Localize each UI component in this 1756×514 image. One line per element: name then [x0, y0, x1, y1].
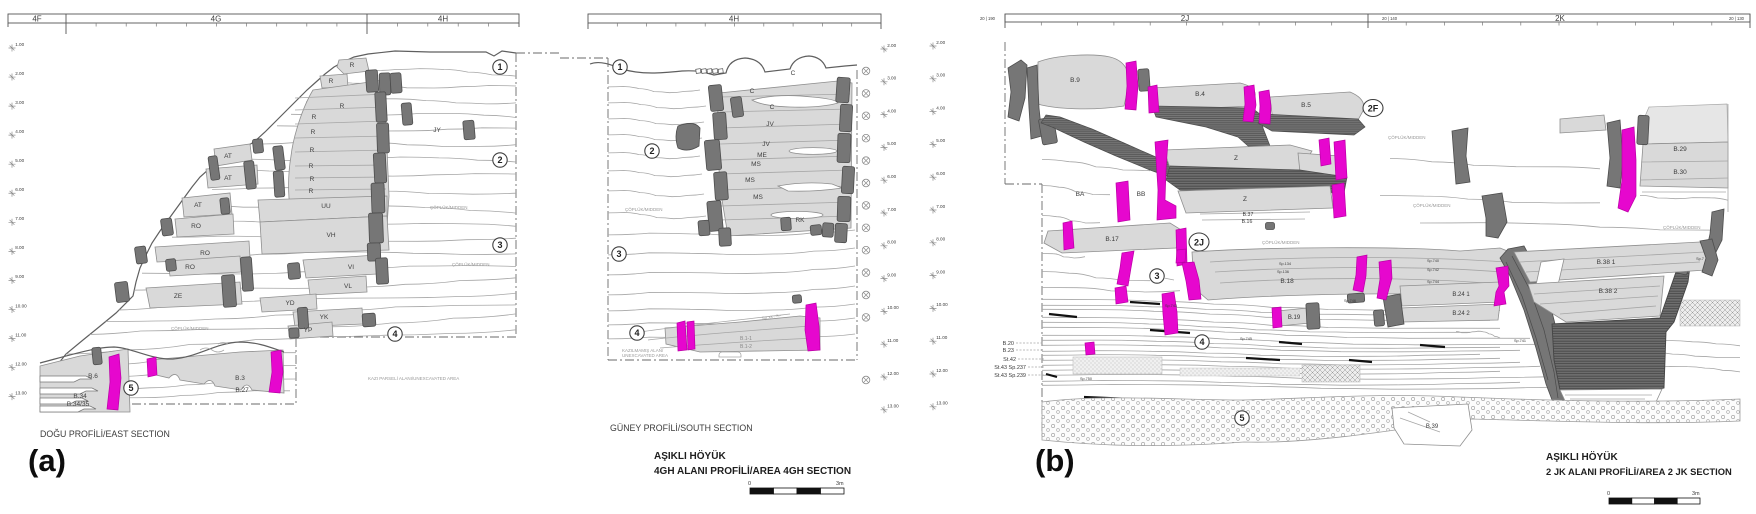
svg-text:4: 4: [634, 328, 639, 338]
svg-text:2 JK ALANI PROFİLİ/AREA 2 JK: 2 JK ALANI PROFİLİ/AREA 2 JK SECTION: [1546, 466, 1732, 477]
svg-text:AT: AT: [224, 175, 232, 182]
svg-text:B.24 1: B.24 1: [1452, 292, 1470, 298]
svg-text:3: 3: [497, 240, 502, 250]
svg-text:1: 1: [497, 62, 502, 72]
svg-text:6.00: 6.00: [15, 187, 24, 192]
svg-text:C: C: [770, 104, 775, 111]
svg-text:0: 0: [748, 481, 751, 487]
svg-text:BA: BA: [1076, 191, 1085, 198]
svg-text:B.18: B.18: [1280, 278, 1294, 285]
svg-text:5: 5: [1239, 413, 1244, 423]
svg-text:St.43 Sp.237: St.43 Sp.237: [994, 365, 1026, 371]
svg-text:8.00: 8.00: [15, 245, 24, 250]
svg-text:11.00: 11.00: [15, 332, 27, 337]
svg-text:R: R: [310, 176, 315, 183]
svg-text:B.19: B.19: [1288, 315, 1301, 321]
svg-text:Sp.746: Sp.746: [1344, 299, 1356, 303]
svg-text:ME: ME: [757, 152, 767, 159]
svg-text:AT: AT: [224, 153, 232, 160]
svg-text:11.00: 11.00: [887, 338, 899, 343]
svg-text:4F: 4F: [32, 15, 41, 24]
svg-text:B.6: B.6: [88, 373, 98, 380]
svg-text:RO: RO: [200, 250, 210, 257]
svg-text:YD: YD: [285, 300, 294, 307]
svg-text:Sp.741: Sp.741: [1514, 339, 1526, 343]
svg-text:2J: 2J: [1181, 14, 1189, 23]
svg-text:(a): (a): [28, 443, 66, 478]
svg-text:2: 2: [497, 155, 502, 165]
svg-text:B.16: B.16: [1242, 219, 1253, 225]
svg-text:R: R: [311, 129, 316, 136]
svg-text:4: 4: [1199, 337, 1204, 347]
svg-text:9.00: 9.00: [887, 272, 896, 277]
svg-text:ÇÖPLÜK/MIDDEN: ÇÖPLÜK/MIDDEN: [1413, 202, 1451, 208]
svg-text:B.38 1: B.38 1: [1597, 259, 1616, 266]
svg-text:YP: YP: [304, 327, 313, 334]
svg-text:2J: 2J: [1194, 238, 1204, 248]
svg-text:3: 3: [1154, 271, 1159, 281]
svg-text:8.00: 8.00: [887, 240, 896, 245]
svg-text:Sp.7: Sp.7: [1696, 257, 1704, 261]
svg-text:3m: 3m: [836, 481, 844, 487]
svg-text:7.00: 7.00: [887, 207, 896, 212]
svg-text:2.00: 2.00: [887, 43, 896, 48]
svg-text:B.1-2: B.1-2: [740, 344, 752, 350]
svg-text:RO: RO: [191, 223, 201, 230]
svg-text:6.00: 6.00: [936, 171, 945, 176]
svg-text:1: 1: [617, 62, 622, 72]
svg-text:ÇÖPLÜK/MIDDEN: ÇÖPLÜK/MIDDEN: [1262, 239, 1300, 245]
svg-text:JV: JV: [762, 141, 770, 148]
svg-text:St.42: St.42: [1003, 357, 1016, 363]
svg-text:ZE: ZE: [174, 293, 183, 300]
svg-text:6.00: 6.00: [887, 174, 896, 179]
svg-text:5.00: 5.00: [887, 141, 896, 146]
svg-text:Sp.745: Sp.745: [1240, 337, 1252, 341]
svg-text:4G: 4G: [211, 15, 222, 24]
svg-text:3.00: 3.00: [936, 73, 945, 78]
svg-text:11.00: 11.00: [936, 335, 948, 340]
svg-text:B.34: B.34: [73, 393, 87, 400]
svg-text:2: 2: [649, 146, 654, 156]
svg-text:Z: Z: [1234, 155, 1238, 162]
svg-text:B.4: B.4: [1195, 91, 1205, 98]
svg-text:12.00: 12.00: [15, 361, 27, 366]
svg-text:7.00: 7.00: [15, 216, 24, 221]
svg-text:5: 5: [128, 383, 133, 393]
svg-text:JY: JY: [433, 127, 441, 134]
svg-text:3: 3: [616, 249, 621, 259]
svg-text:9.00: 9.00: [936, 269, 945, 274]
svg-text:VI: VI: [348, 264, 354, 271]
svg-text:5.00: 5.00: [15, 158, 24, 163]
svg-text:1.00: 1.00: [15, 42, 24, 47]
svg-text:ÇÖPLÜK/MIDDEN: ÇÖPLÜK/MIDDEN: [1663, 224, 1701, 230]
svg-text:BB: BB: [1137, 191, 1146, 198]
svg-text:ÇÖPLÜK/MIDDEN: ÇÖPLÜK/MIDDEN: [625, 206, 663, 212]
svg-text:B.1-1: B.1-1: [740, 336, 752, 342]
svg-text:Sp.134: Sp.134: [1279, 262, 1291, 266]
svg-text:10.00: 10.00: [15, 303, 27, 308]
svg-text:B.24 2: B.24 2: [1452, 311, 1470, 317]
svg-text:MS: MS: [751, 161, 761, 168]
svg-text:B.29: B.29: [1673, 146, 1687, 153]
svg-text:7.00: 7.00: [936, 204, 945, 209]
svg-text:UU: UU: [321, 203, 331, 210]
svg-text:GÜNEY PROFİLİ/SOUTH SECTION: GÜNEY PROFİLİ/SOUTH SECTION: [610, 423, 753, 433]
svg-text:R: R: [350, 62, 355, 69]
svg-text:B.20: B.20: [1003, 341, 1014, 347]
svg-text:13.00: 13.00: [936, 401, 948, 406]
svg-text:RK: RK: [795, 217, 805, 224]
svg-text:4.00: 4.00: [936, 105, 945, 110]
svg-text:RO: RO: [185, 264, 195, 271]
svg-text:AŞIKLI HÖYÜK: AŞIKLI HÖYÜK: [654, 449, 726, 462]
svg-text:Sp.136: Sp.136: [1277, 270, 1289, 274]
svg-text:MS: MS: [745, 177, 755, 184]
svg-text:4.00: 4.00: [887, 108, 896, 113]
svg-text:20 | 140: 20 | 140: [1382, 16, 1398, 21]
svg-text:B.30: B.30: [1673, 169, 1687, 176]
svg-text:MS: MS: [753, 194, 763, 201]
svg-text:JV: JV: [766, 121, 774, 128]
svg-text:B.38 2: B.38 2: [1599, 288, 1618, 295]
svg-text:B.23: B.23: [1003, 348, 1014, 354]
svg-text:2F: 2F: [1368, 104, 1379, 114]
svg-text:5.00: 5.00: [936, 138, 945, 143]
svg-text:13.00: 13.00: [15, 390, 27, 395]
svg-text:0: 0: [1607, 491, 1610, 497]
svg-text:UNEXCAVATED AREA: UNEXCAVATED AREA: [622, 353, 668, 358]
svg-text:B.37: B.37: [1243, 212, 1254, 218]
svg-text:2K: 2K: [1555, 14, 1565, 23]
svg-text:2.00: 2.00: [15, 71, 24, 76]
svg-text:B.3: B.3: [235, 375, 245, 382]
svg-text:AŞIKLI HÖYÜK: AŞIKLI HÖYÜK: [1546, 450, 1618, 463]
svg-text:9.00: 9.00: [15, 274, 24, 279]
svg-text:B.39: B.39: [1426, 424, 1439, 430]
svg-text:VH: VH: [326, 232, 335, 239]
svg-text:8.00: 8.00: [936, 237, 945, 242]
svg-text:(b): (b): [1035, 443, 1075, 478]
svg-text:B.17: B.17: [1105, 236, 1119, 243]
svg-text:B.5: B.5: [1301, 102, 1311, 109]
svg-text:R: R: [340, 103, 345, 110]
svg-text:20 | 190: 20 | 190: [980, 16, 996, 21]
svg-text:10.00: 10.00: [887, 305, 899, 310]
svg-text:3m: 3m: [1692, 491, 1700, 497]
svg-text:Sp.750: Sp.750: [1080, 377, 1092, 381]
svg-text:20 | 130: 20 | 130: [1729, 16, 1745, 21]
svg-text:4H: 4H: [729, 15, 739, 24]
svg-text:R: R: [329, 78, 334, 85]
svg-text:13.00: 13.00: [887, 404, 899, 409]
svg-text:ÇÖPLÜK/MIDDEN: ÇÖPLÜK/MIDDEN: [1388, 134, 1426, 140]
svg-text:3.00: 3.00: [15, 100, 24, 105]
svg-text:4: 4: [392, 329, 397, 339]
svg-text:12.00: 12.00: [887, 371, 899, 376]
svg-text:VL: VL: [344, 283, 352, 290]
svg-text:4.00: 4.00: [15, 129, 24, 134]
svg-text:B.9: B.9: [1070, 77, 1080, 84]
svg-text:KAZI PARSELİ ALANI/UNEXCAVATED: KAZI PARSELİ ALANI/UNEXCAVATED AREA: [368, 375, 459, 381]
svg-text:R: R: [309, 163, 314, 170]
svg-text:AT: AT: [194, 202, 202, 209]
svg-text:ÇÖPLÜK/MIDDEN: ÇÖPLÜK/MIDDEN: [452, 261, 490, 267]
svg-text:2.00: 2.00: [936, 40, 945, 45]
svg-text:R: R: [310, 147, 315, 154]
svg-text:Sp.744: Sp.744: [1427, 280, 1439, 284]
svg-text:YK: YK: [320, 314, 329, 321]
svg-text:Sp.740: Sp.740: [1427, 259, 1439, 263]
svg-text:R: R: [309, 188, 314, 195]
svg-text:R: R: [312, 114, 317, 121]
svg-text:10.00: 10.00: [936, 302, 948, 307]
svg-text:Sp.743: Sp.743: [1165, 304, 1177, 308]
svg-text:C: C: [750, 88, 755, 95]
svg-text:12.00: 12.00: [936, 368, 948, 373]
svg-text:B.34/35: B.34/35: [67, 401, 90, 408]
svg-text:4GH ALANI PROFİLİ/AREA 4GH SEC: 4GH ALANI PROFİLİ/AREA 4GH SECTION: [654, 464, 851, 477]
svg-text:B.27: B.27: [235, 387, 249, 394]
svg-text:Sp.742: Sp.742: [1427, 268, 1439, 272]
svg-text:ÇÖPLÜK/MIDDEN: ÇÖPLÜK/MIDDEN: [430, 204, 468, 210]
svg-text:St.43 Sp.239: St.43 Sp.239: [994, 373, 1026, 379]
svg-text:Z: Z: [1243, 196, 1247, 203]
svg-text:DOĞU PROFİLİ/EAST SECTION: DOĞU PROFİLİ/EAST SECTION: [40, 429, 170, 439]
svg-text:3.00: 3.00: [887, 76, 896, 81]
svg-text:ÇÖPLÜK/MIDDEN: ÇÖPLÜK/MIDDEN: [171, 325, 209, 331]
svg-text:4H: 4H: [438, 15, 448, 24]
svg-text:C: C: [791, 70, 796, 77]
